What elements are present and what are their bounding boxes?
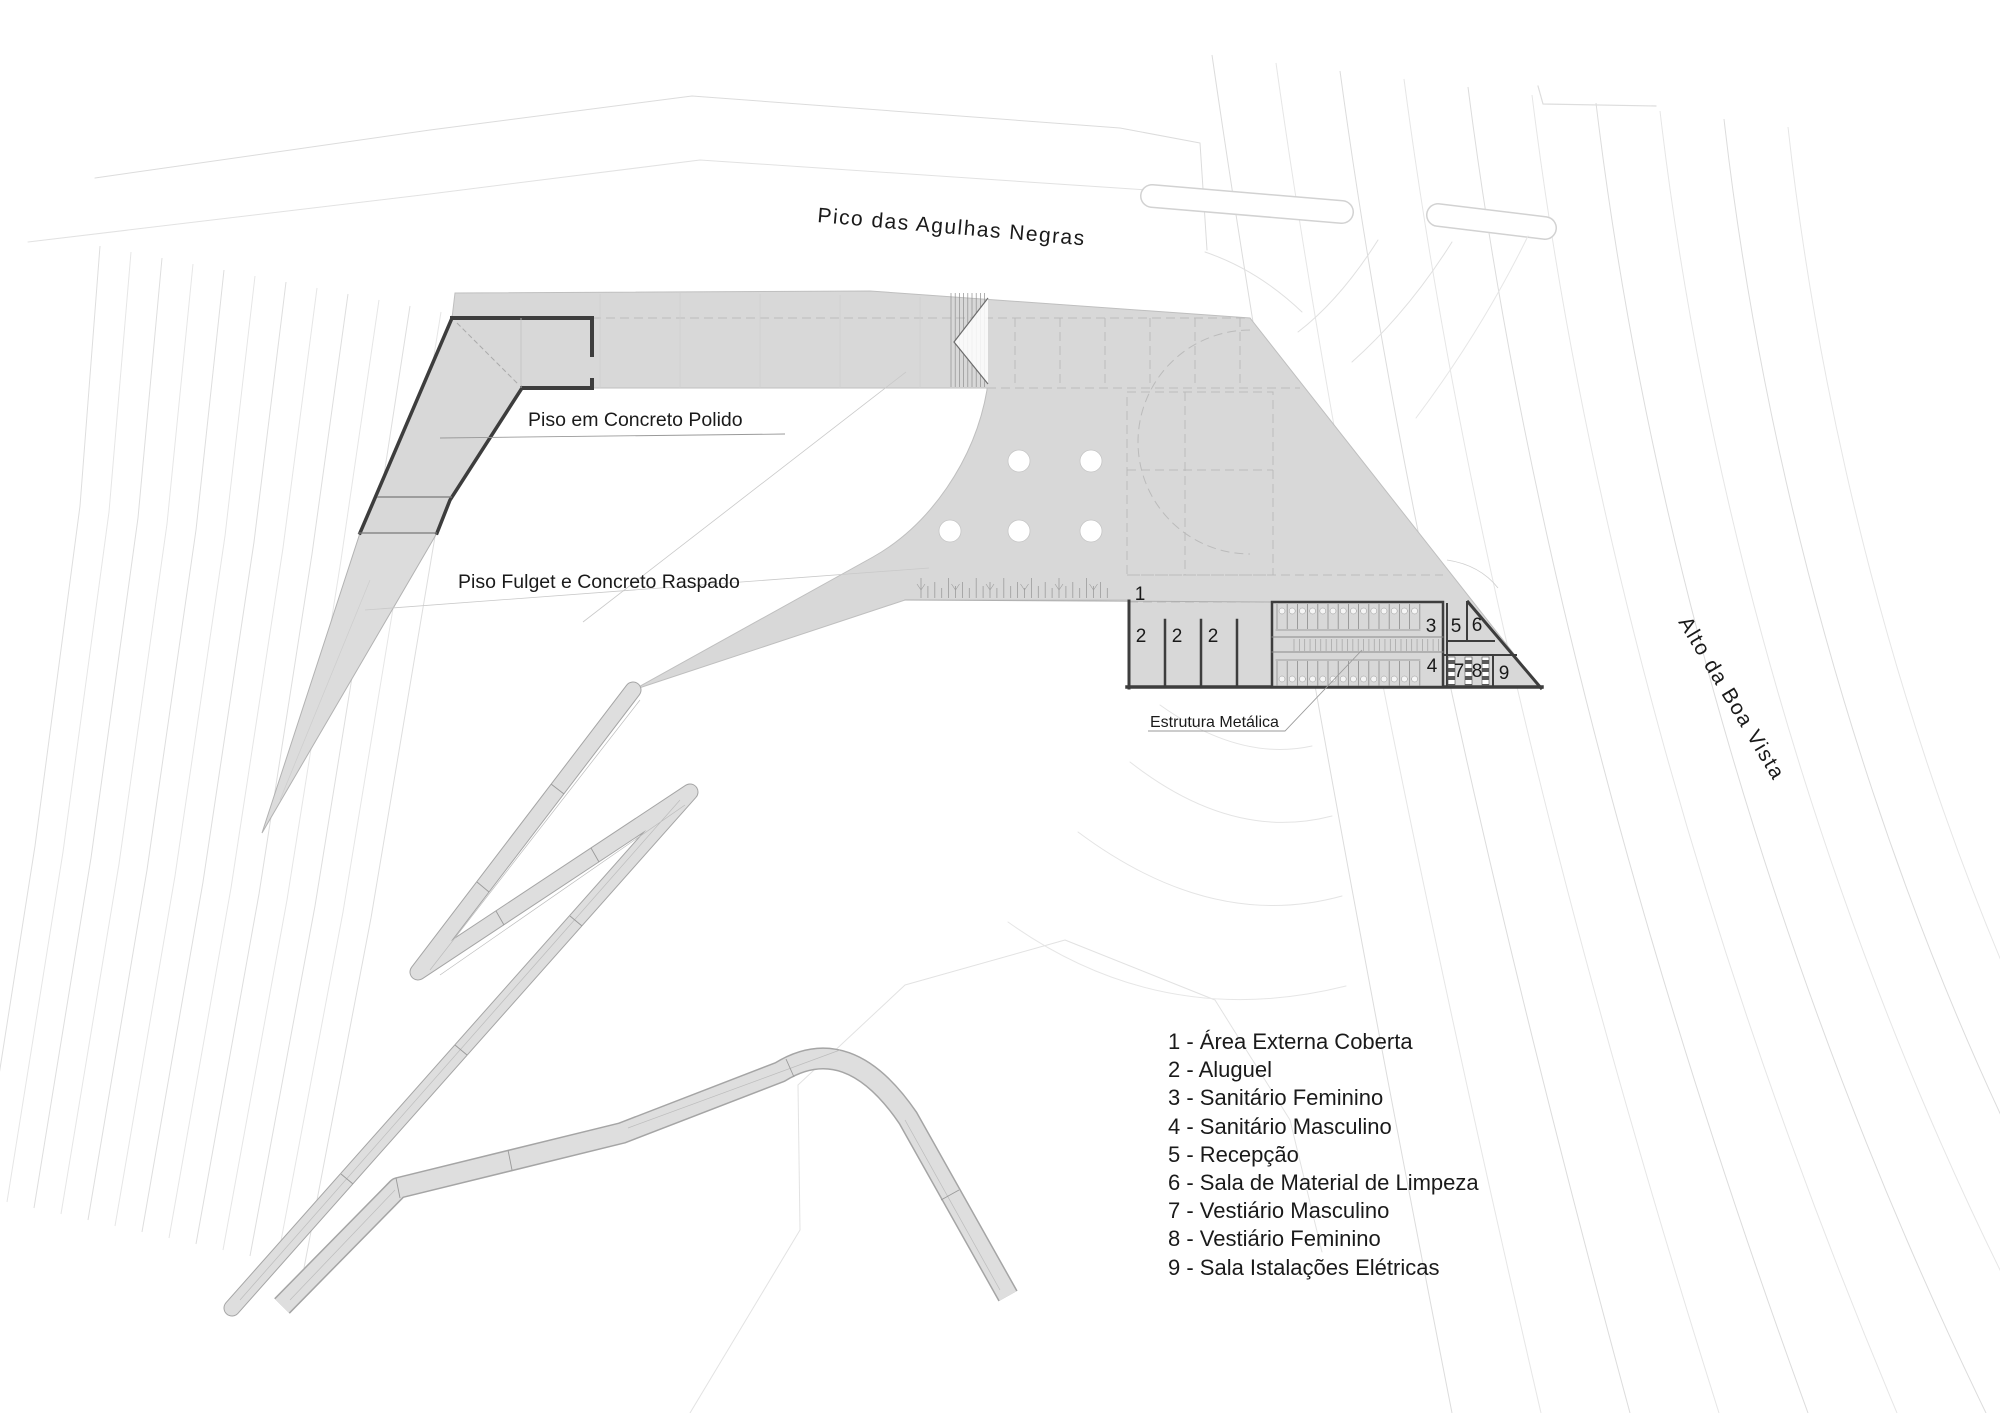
legend-item: 2 - Aluguel — [1168, 1056, 1479, 1084]
plan-label-9: 9 — [1499, 663, 1510, 684]
legend-item: 6 - Sala de Material de Limpeza — [1168, 1169, 1479, 1197]
plan-label-8: 8 — [1472, 661, 1483, 682]
plan-label-7: 7 — [1454, 661, 1465, 682]
plan-label-3: 3 — [1426, 616, 1437, 637]
label-polished-concrete: Piso em Concreto Polido — [528, 409, 743, 431]
label-alto-da-boa-vista: Alto da Boa Vista — [1674, 613, 1790, 784]
plan-label-4: 4 — [1427, 656, 1438, 677]
plan-label-6: 6 — [1472, 615, 1483, 636]
legend-item: 5 - Recepção — [1168, 1141, 1479, 1169]
label-metal-structure: Estrutura Metálica — [1150, 714, 1279, 731]
site-plan-drawing: 1 2 2 2 3 4 5 6 7 8 9 Piso em Concreto P… — [0, 0, 2000, 1413]
plan-label-1: 1 — [1135, 584, 1146, 605]
legend-item: 1 - Área Externa Coberta — [1168, 1028, 1479, 1056]
zigzag-ramp — [232, 690, 690, 1308]
plan-label-2a: 2 — [1136, 626, 1147, 647]
label-pico-das-agulhas-negras: Pico das Agulhas Negras — [817, 204, 1087, 250]
plan-label-2b: 2 — [1172, 626, 1183, 647]
legend-item: 8 - Vestiário Feminino — [1168, 1225, 1479, 1253]
legend-item: 9 - Sala Istalações Elétricas — [1168, 1254, 1479, 1282]
plan-label-5: 5 — [1451, 616, 1462, 637]
lower-trail-band — [282, 1050, 1008, 1306]
plan-label-2c: 2 — [1208, 626, 1219, 647]
legend-item: 3 - Sanitário Feminino — [1168, 1084, 1479, 1112]
label-fulget-floor: Piso Fulget e Concreto Raspado — [458, 571, 740, 593]
arm-centerline — [280, 580, 370, 800]
site-plan-canvas: 1 2 2 2 3 4 5 6 7 8 9 Piso em Concreto P… — [0, 0, 2000, 1413]
legend-item: 4 - Sanitário Masculino — [1168, 1113, 1479, 1141]
legend-item: 7 - Vestiário Masculino — [1168, 1197, 1479, 1225]
room-legend: 1 - Área Externa Coberta2 - Aluguel3 - S… — [1168, 1028, 1479, 1282]
